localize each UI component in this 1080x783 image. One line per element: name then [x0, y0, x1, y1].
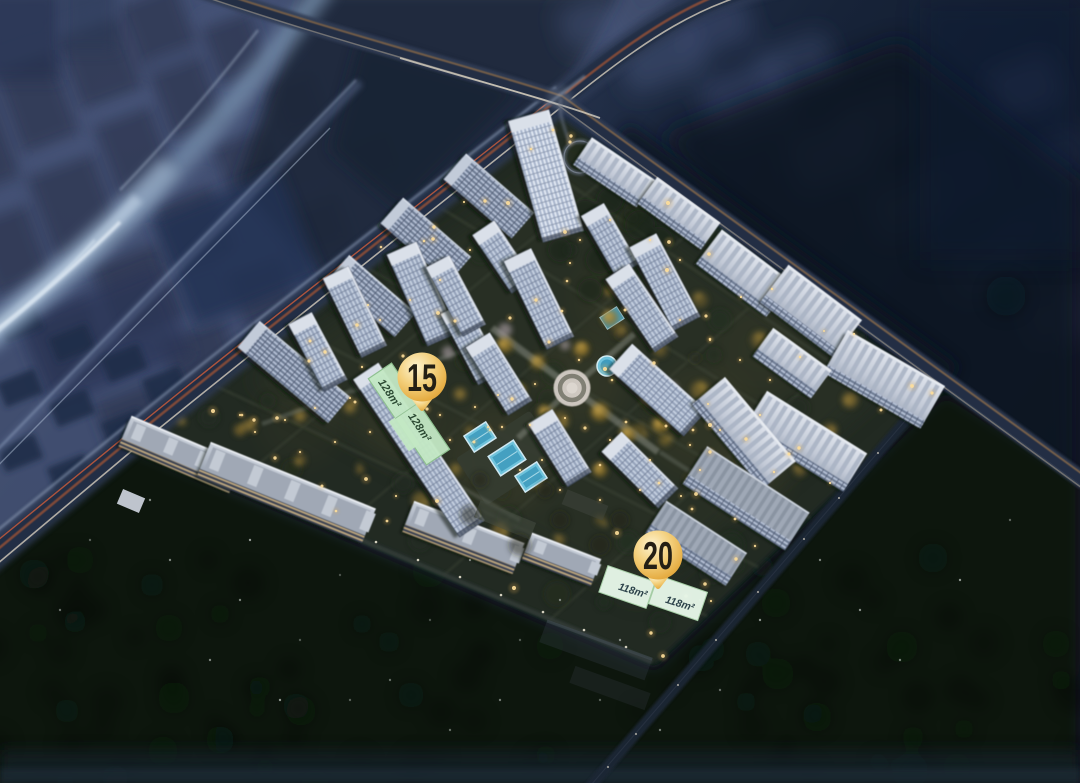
svg-text:15: 15: [407, 357, 437, 400]
svg-text:20: 20: [643, 535, 673, 578]
